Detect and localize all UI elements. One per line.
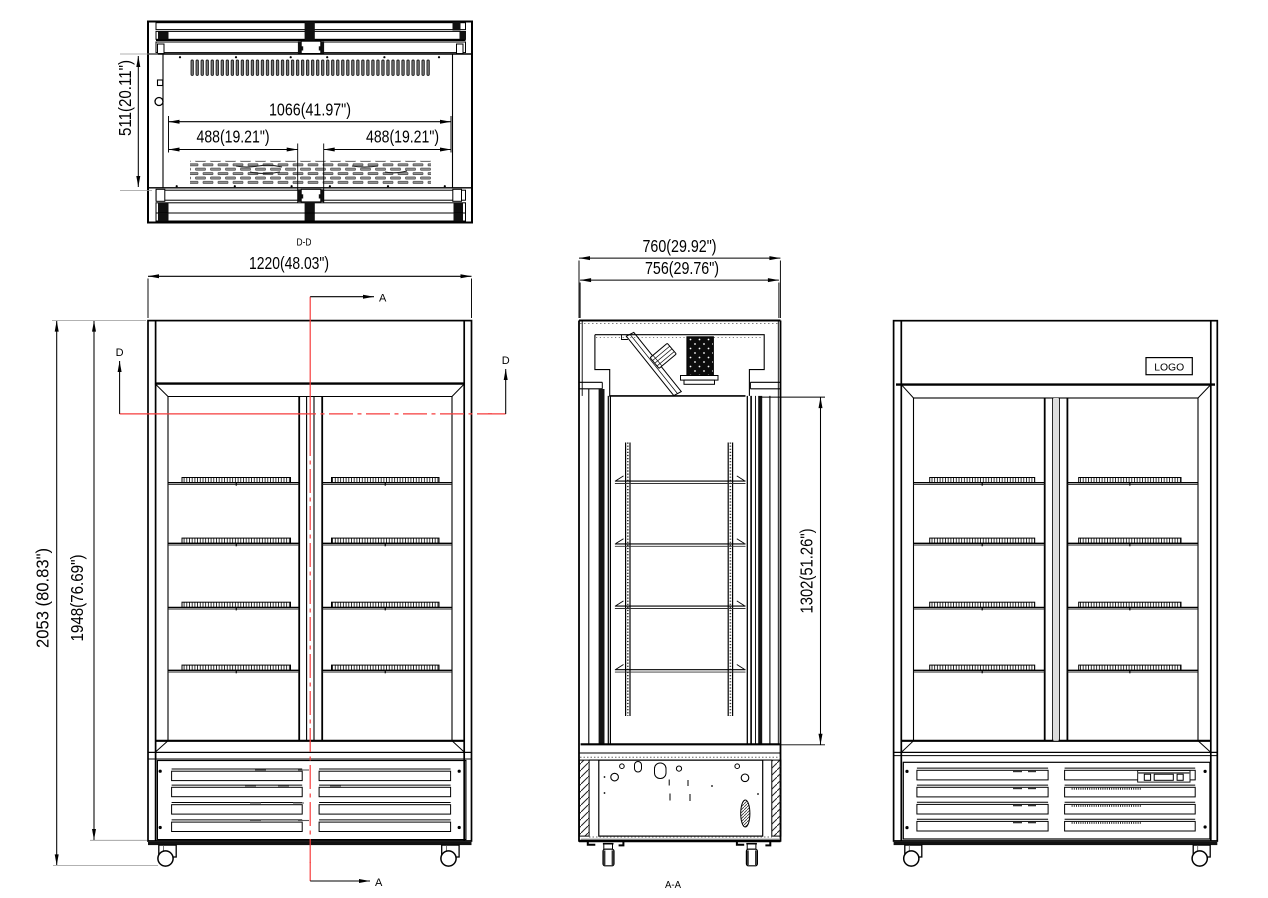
svg-text:1948(76.69"): 1948(76.69") [67,555,87,642]
svg-text:1066(41.97"): 1066(41.97") [269,100,351,120]
svg-text:D: D [502,355,510,367]
svg-text:488(19.21"): 488(19.21") [366,127,439,147]
svg-text:A: A [375,877,383,889]
svg-text:LOGO: LOGO [1154,361,1184,373]
svg-text:760(29.92"): 760(29.92") [643,236,717,256]
svg-text:A-A: A-A [665,879,681,891]
svg-text:D: D [116,347,124,359]
svg-text:D-D: D-D [297,237,312,249]
svg-text:1302(51.26"): 1302(51.26") [797,529,817,614]
svg-text:2053 (80.83"): 2053 (80.83") [32,548,52,648]
svg-text:1220(48.03"): 1220(48.03") [249,253,329,273]
svg-text:511(20.11"): 511(20.11") [115,60,135,136]
svg-text:A: A [379,293,387,305]
svg-text:756(29.76"): 756(29.76") [645,258,719,278]
svg-text:488(19.21"): 488(19.21") [197,127,270,147]
